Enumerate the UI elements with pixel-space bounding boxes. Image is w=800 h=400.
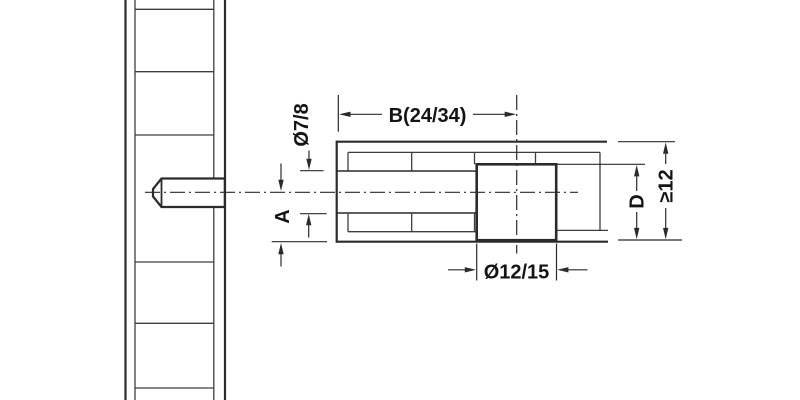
diagram-canvas: B(24/34) Ø7/8 A Ø12/15 D bbox=[0, 0, 800, 400]
dimension-hole-diameter: Ø12/15 bbox=[448, 244, 588, 284]
dimension-min-thickness: ≥12 bbox=[618, 142, 682, 240]
dim-shaft-dia-label: Ø7/8 bbox=[291, 103, 313, 146]
technical-diagram: B(24/34) Ø7/8 A Ø12/15 D bbox=[0, 0, 800, 400]
dim-hole-dia-label: Ø12/15 bbox=[484, 262, 550, 284]
dimension-shaft-diameter: Ø7/8 bbox=[291, 103, 327, 237]
dimension-a: A bbox=[272, 164, 327, 267]
dim-a-label: A bbox=[272, 209, 294, 223]
dim-min-thickness-label: ≥12 bbox=[656, 169, 678, 202]
dimension-d: D bbox=[556, 164, 648, 239]
dim-b-label: B(24/34) bbox=[389, 105, 467, 127]
dimension-b: B(24/34) bbox=[338, 95, 516, 132]
dim-d-label: D bbox=[627, 194, 649, 208]
